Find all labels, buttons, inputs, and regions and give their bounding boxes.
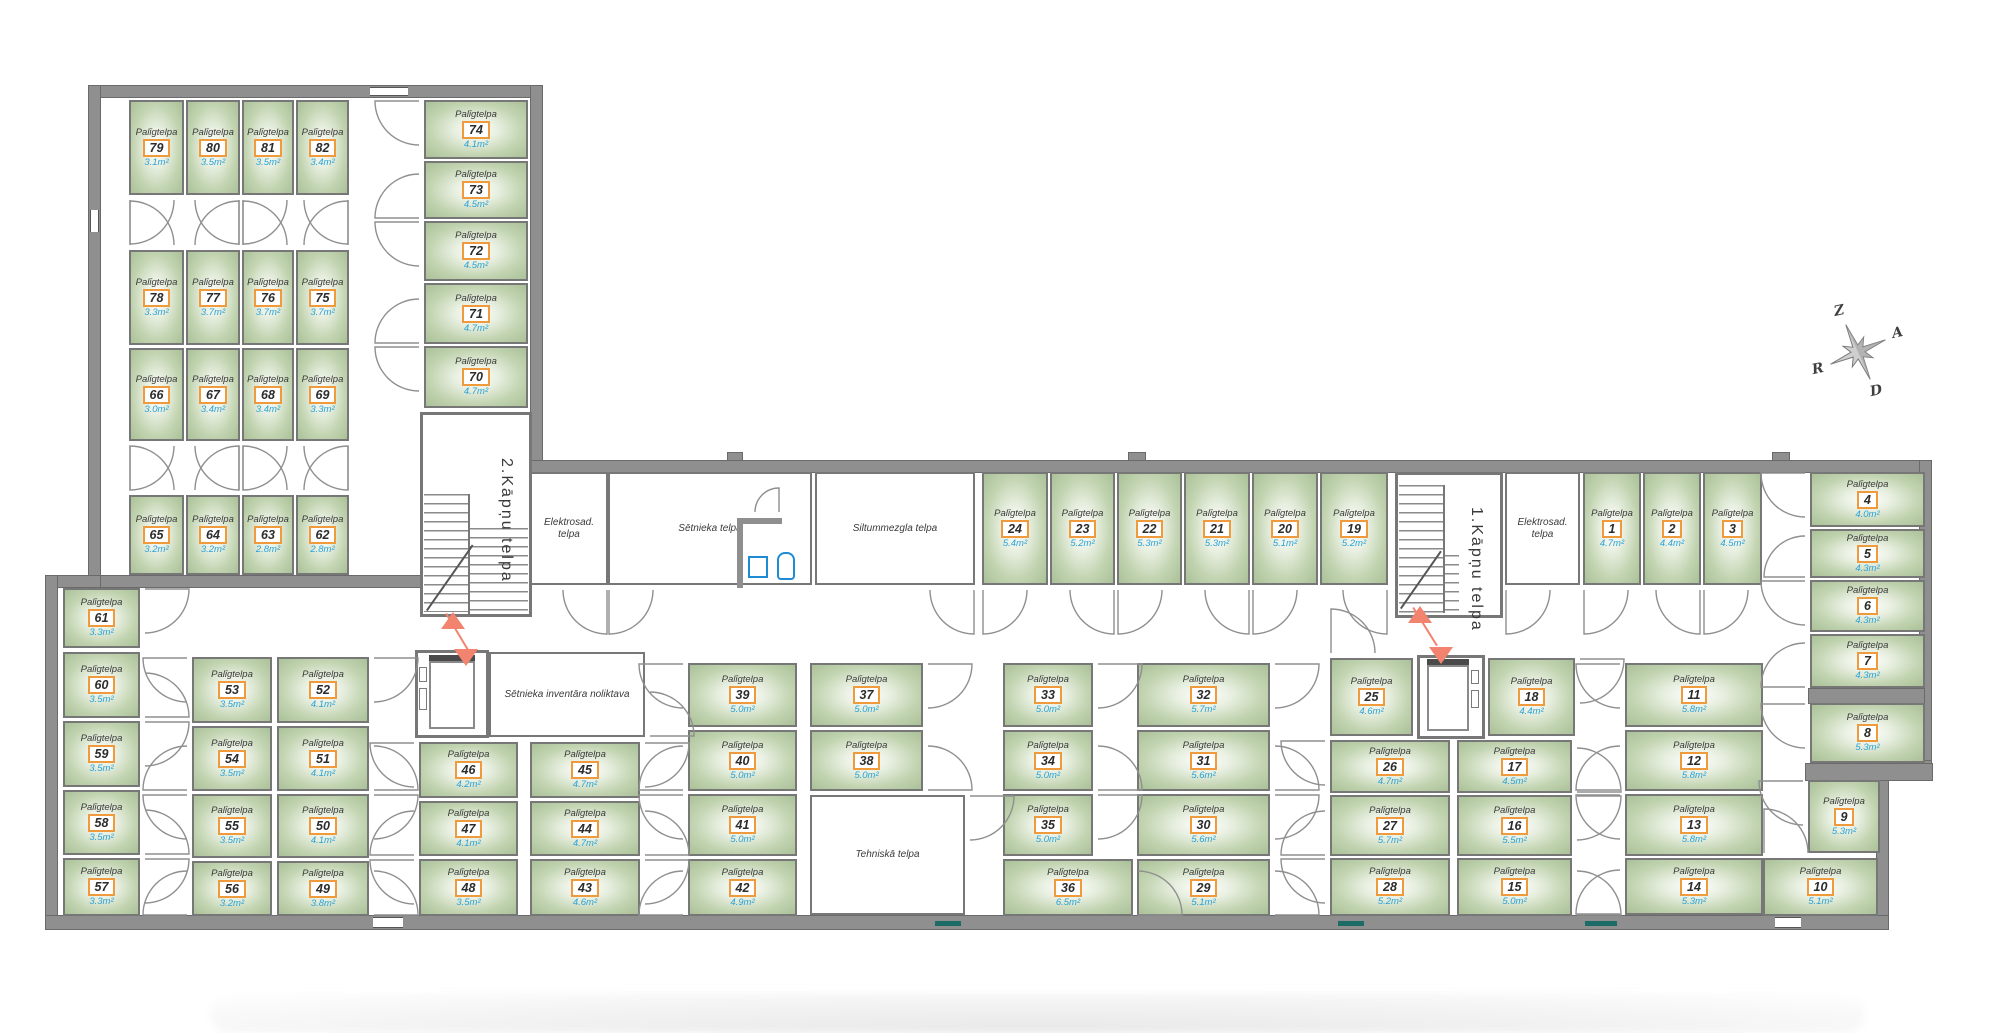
room-area: 3.1m²	[144, 158, 168, 168]
room-area: 4.7m²	[464, 324, 488, 334]
room-area: 4.5m²	[464, 261, 488, 271]
room-area: 5.7m²	[1191, 705, 1215, 715]
door-arc	[1343, 590, 1387, 634]
room-number: 78	[143, 289, 171, 307]
room-area: 4.3m²	[1855, 564, 1879, 574]
room-type-label: Palīgtelpa	[564, 868, 606, 878]
room-area: 4.7m²	[1600, 539, 1624, 549]
room-type-label: Palīgtelpa	[1712, 509, 1754, 519]
wall-joint	[1772, 452, 1790, 461]
room-type-label: Palīgtelpa	[846, 675, 888, 685]
window-sill	[1338, 921, 1364, 926]
room-type-label: Palīgtelpa	[302, 515, 344, 525]
room-area: 6.5m²	[1056, 898, 1080, 908]
room-type-label: Palīgtelpa	[211, 869, 253, 879]
room-number: 75	[309, 289, 337, 307]
room-number: 59	[88, 745, 116, 763]
door-arc	[1759, 781, 1803, 825]
room-area: 4.1m²	[311, 700, 335, 710]
door-arc	[375, 347, 419, 391]
door-arc	[1761, 643, 1805, 687]
room-type-label: Palīgtelpa	[448, 809, 490, 819]
room-number: 11	[1681, 686, 1708, 704]
door-arc	[130, 201, 174, 245]
room-type-label: Palīgtelpa	[1673, 675, 1715, 685]
room-area: 4.0m²	[1855, 510, 1879, 520]
elevator-equipment	[419, 667, 427, 682]
door-arc	[243, 446, 287, 490]
storage-room-80: Palīgtelpa803.5m²	[186, 100, 240, 195]
door-arc	[1118, 590, 1162, 634]
room-number: 74	[462, 121, 490, 139]
room-area: 4.7m²	[573, 839, 597, 849]
room-number: 69	[309, 386, 337, 404]
door-arc	[1253, 590, 1297, 634]
utility-room-label: Elektrosad. telpa	[544, 517, 594, 541]
door-arc	[639, 871, 683, 915]
room-number: 46	[455, 761, 483, 779]
room-number: 77	[199, 289, 227, 307]
room-number: 81	[254, 139, 282, 157]
room-type-label: Palīgtelpa	[1027, 805, 1069, 815]
utility-room: Sētnieka inventāra noliktava	[489, 652, 645, 737]
room-area: 3.7m²	[201, 308, 225, 318]
utility-room-label: Siltummezgla telpa	[853, 523, 937, 535]
room-number: 72	[462, 242, 490, 260]
compass-star-shading	[1846, 325, 1886, 380]
storage-room-53: Palīgtelpa533.5m²	[192, 657, 272, 723]
room-type-label: Palīgtelpa	[1183, 741, 1225, 751]
room-type-label: Palīgtelpa	[1183, 675, 1225, 685]
room-type-label: Palīgtelpa	[1129, 509, 1171, 519]
door-arc	[370, 860, 414, 904]
room-area: 5.0m²	[854, 771, 878, 781]
room-number: 47	[455, 820, 483, 838]
room-area: 3.5m²	[456, 898, 480, 908]
room-area: 4.4m²	[1519, 707, 1543, 717]
room-number: 67	[199, 386, 227, 404]
room-type-label: Palīgtelpa	[455, 357, 497, 367]
storage-room-81: Palīgtelpa813.5m²	[242, 100, 294, 195]
room-area: 3.5m²	[220, 769, 244, 779]
door-arc	[928, 746, 972, 790]
room-type-label: Palīgtelpa	[211, 806, 253, 816]
room-type-label: Palīgtelpa	[1183, 805, 1225, 815]
room-type-label: Palīgtelpa	[302, 806, 344, 816]
room-area: 3.5m²	[256, 158, 280, 168]
room-number: 34	[1034, 752, 1062, 770]
room-number: 16	[1501, 817, 1529, 835]
storage-room-40: Palīgtelpa405.0m²	[688, 730, 797, 791]
door-arc	[243, 201, 287, 245]
room-type-label: Palīgtelpa	[1591, 509, 1633, 519]
room-type-label: Palīgtelpa	[564, 809, 606, 819]
storage-room-35: Palīgtelpa355.0m²	[1003, 794, 1093, 856]
room-number: 6	[1857, 597, 1878, 615]
room-type-label: Palīgtelpa	[1511, 677, 1553, 687]
room-type-label: Palīgtelpa	[846, 741, 888, 751]
door-arc	[145, 722, 189, 766]
room-number: 21	[1203, 520, 1231, 538]
room-number: 10	[1807, 878, 1835, 896]
room-area: 5.1m²	[1273, 539, 1297, 549]
wall	[1808, 688, 1925, 704]
room-number: 3	[1722, 520, 1743, 538]
room-number: 30	[1190, 816, 1218, 834]
room-type-label: Palīgtelpa	[81, 803, 123, 813]
room-number: 58	[88, 814, 116, 832]
door-arc	[243, 446, 287, 490]
storage-room-37: Palīgtelpa375.0m²	[810, 663, 923, 727]
room-area: 5.2m²	[1070, 539, 1094, 549]
storage-room-73: Palīgtelpa734.5m²	[424, 161, 528, 219]
room-type-label: Palīgtelpa	[994, 509, 1036, 519]
door-arc	[304, 200, 348, 244]
entrance-arrow-down	[1429, 647, 1453, 664]
storage-room-62: Palīgtelpa622.8m²	[296, 495, 349, 575]
door-arc	[145, 859, 189, 903]
elevator-equipment	[1471, 670, 1479, 684]
door-arc	[1281, 811, 1325, 855]
room-area: 5.4m²	[1003, 539, 1027, 549]
room-type-label: Palīgtelpa	[564, 750, 606, 760]
storage-room-22: Palīgtelpa225.3m²	[1117, 472, 1182, 585]
room-area: 5.0m²	[730, 835, 754, 845]
room-type-label: Palīgtelpa	[1847, 586, 1889, 596]
storage-room-70: Palīgtelpa704.7m²	[424, 346, 528, 408]
storage-room-82: Palīgtelpa823.4m²	[296, 100, 349, 195]
storage-room-17: Palīgtelpa174.5m²	[1457, 740, 1572, 793]
door-arc	[243, 200, 287, 244]
wall	[88, 575, 435, 588]
room-area: 4.2m²	[456, 780, 480, 790]
door-arc	[1576, 870, 1620, 914]
room-type-label: Palīgtelpa	[722, 675, 764, 685]
storage-room-58: Palīgtelpa583.5m²	[63, 790, 140, 855]
door-arc	[1704, 590, 1748, 634]
wall	[88, 85, 101, 588]
room-area: 3.7m²	[310, 308, 334, 318]
room-type-label: Palīgtelpa	[1823, 797, 1865, 807]
storage-room-38: Palīgtelpa385.0m²	[810, 730, 923, 791]
door-arc	[370, 743, 414, 787]
room-area: 4.7m²	[573, 780, 597, 790]
room-area: 5.2m²	[1342, 539, 1366, 549]
room-number: 38	[853, 752, 881, 770]
room-number: 41	[729, 816, 757, 834]
storage-room-63: Palīgtelpa632.8m²	[242, 495, 294, 575]
room-number: 44	[571, 820, 599, 838]
room-type-label: Palīgtelpa	[302, 375, 344, 385]
room-type-label: Palīgtelpa	[1673, 805, 1715, 815]
door-arc	[1070, 590, 1114, 634]
room-type-label: Palīgtelpa	[1494, 867, 1536, 877]
storage-room-61: Palīgtelpa613.3m²	[63, 588, 140, 648]
storage-room-50: Palīgtelpa504.1m²	[277, 794, 369, 858]
room-number: 60	[88, 676, 116, 694]
door-arc	[130, 200, 174, 244]
room-type-label: Palīgtelpa	[302, 128, 344, 138]
door-arc	[304, 446, 348, 490]
room-type-label: Palīgtelpa	[1494, 806, 1536, 816]
room-type-label: Palīgtelpa	[136, 128, 178, 138]
room-area: 5.1m²	[1191, 898, 1215, 908]
storage-room-69: Palīgtelpa693.3m²	[296, 348, 349, 441]
window-sill	[1585, 921, 1617, 926]
door-arc	[1577, 748, 1621, 792]
storage-room-8: Palīgtelpa85.3m²	[1810, 703, 1925, 763]
door-arc	[374, 795, 418, 839]
room-number: 12	[1680, 752, 1708, 770]
room-type-label: Palīgtelpa	[1027, 741, 1069, 751]
storage-room-23: Palīgtelpa235.2m²	[1050, 472, 1115, 585]
door-arc	[928, 664, 972, 708]
door-arc	[195, 446, 239, 490]
room-number: 54	[218, 750, 246, 768]
door-arc	[1275, 664, 1319, 708]
storage-room-78: Palīgtelpa783.3m²	[129, 250, 184, 345]
room-number: 9	[1834, 808, 1855, 826]
door-arc	[1656, 590, 1700, 634]
room-area: 3.5m²	[89, 695, 113, 705]
window	[90, 210, 99, 232]
room-area: 5.3m²	[1137, 539, 1161, 549]
room-number: 13	[1680, 816, 1708, 834]
room-type-label: Palīgtelpa	[1847, 480, 1889, 490]
room-number: 42	[729, 879, 757, 897]
storage-room-30: Palīgtelpa305.6m²	[1137, 794, 1270, 856]
room-number: 80	[199, 139, 227, 157]
door-arc	[1281, 741, 1325, 785]
door-arc	[370, 811, 414, 855]
room-area: 5.6m²	[1191, 835, 1215, 845]
room-type-label: Palīgtelpa	[455, 294, 497, 304]
room-number: 55	[218, 817, 246, 835]
room-type-label: Palīgtelpa	[136, 375, 178, 385]
storage-room-56: Palīgtelpa563.2m²	[192, 861, 272, 916]
storage-room-43: Palīgtelpa434.6m²	[530, 859, 640, 916]
room-number: 8	[1857, 724, 1878, 742]
room-type-label: Palīgtelpa	[448, 868, 490, 878]
storage-room-15: Palīgtelpa155.0m²	[1457, 858, 1572, 916]
room-type-label: Palīgtelpa	[1369, 806, 1411, 816]
wall-joint	[1128, 452, 1146, 461]
room-number: 5	[1857, 545, 1878, 563]
room-number: 29	[1190, 879, 1218, 897]
room-type-label: Palīgtelpa	[1351, 677, 1393, 687]
door-arc	[1506, 590, 1550, 634]
room-type-label: Palīgtelpa	[302, 739, 344, 749]
door-arc	[145, 810, 189, 854]
room-number: 26	[1376, 758, 1404, 776]
storage-room-60: Palīgtelpa603.5m²	[63, 652, 140, 718]
room-number: 71	[462, 305, 490, 323]
stairwell-1-label: 1.Kāpņu telpa	[1456, 482, 1496, 657]
compass-north-label: Z	[1833, 302, 1846, 320]
room-area: 4.6m²	[1359, 707, 1383, 717]
elevator-car	[429, 661, 475, 729]
door-arc	[1761, 473, 1805, 517]
door-arc	[1576, 664, 1620, 708]
room-area: 5.0m²	[1036, 705, 1060, 715]
storage-room-7: Palīgtelpa74.3m²	[1810, 634, 1925, 688]
compass-east-label: A	[1891, 324, 1905, 342]
room-area: 4.1m²	[311, 769, 335, 779]
room-type-label: Palīgtelpa	[192, 515, 234, 525]
storage-room-68: Palīgtelpa683.4m²	[242, 348, 294, 441]
room-type-label: Palīgtelpa	[211, 739, 253, 749]
storage-room-9: Palīgtelpa95.3m²	[1808, 780, 1880, 853]
storage-room-12: Palīgtelpa125.8m²	[1625, 730, 1763, 791]
room-area: 3.3m²	[144, 308, 168, 318]
storage-room-64: Palīgtelpa643.2m²	[186, 495, 240, 575]
room-number: 68	[254, 386, 282, 404]
door-arc	[374, 871, 418, 915]
room-area: 3.3m²	[89, 897, 113, 907]
storage-room-26: Palīgtelpa264.7m²	[1330, 740, 1450, 793]
room-number: 79	[143, 139, 171, 157]
room-area: 4.7m²	[464, 387, 488, 397]
room-number: 49	[309, 880, 337, 898]
room-area: 5.5m²	[1502, 836, 1526, 846]
door-arc	[145, 673, 189, 717]
room-area: 3.3m²	[310, 405, 334, 415]
room-type-label: Palīgtelpa	[1369, 747, 1411, 757]
room-area: 4.9m²	[730, 898, 754, 908]
storage-room-47: Palīgtelpa474.1m²	[419, 801, 518, 856]
storage-room-44: Palīgtelpa444.7m²	[530, 801, 640, 856]
storage-room-48: Palīgtelpa483.5m²	[419, 859, 518, 916]
door-arc	[304, 201, 348, 245]
room-area: 5.3m²	[1855, 743, 1879, 753]
toilet-icon	[777, 552, 795, 580]
storage-room-27: Palīgtelpa275.7m²	[1330, 795, 1450, 856]
room-area: 3.8m²	[311, 899, 335, 909]
room-area: 3.5m²	[89, 833, 113, 843]
window	[1775, 917, 1801, 928]
room-area: 3.2m²	[220, 899, 244, 909]
storage-room-74: Palīgtelpa744.1m²	[424, 100, 528, 159]
door-arc	[1275, 871, 1319, 915]
storage-room-55: Palīgtelpa553.5m²	[192, 794, 272, 858]
door-arc	[1281, 859, 1325, 903]
storage-room-42: Palīgtelpa424.9m²	[688, 859, 797, 916]
room-type-label: Palīgtelpa	[1027, 675, 1069, 685]
room-area: 3.0m²	[144, 405, 168, 415]
storage-room-10: Palīgtelpa105.1m²	[1763, 858, 1878, 916]
room-number: 73	[462, 181, 490, 199]
utility-room-label: Tehniskā telpa	[855, 849, 919, 861]
storage-room-18: Palīgtelpa184.4m²	[1488, 658, 1575, 736]
room-number: 45	[571, 761, 599, 779]
room-area: 5.3m²	[1682, 897, 1706, 907]
storage-room-79: Palīgtelpa793.1m²	[129, 100, 184, 195]
wc-partition	[737, 518, 743, 588]
room-type-label: Palīgtelpa	[192, 128, 234, 138]
door-arc	[145, 589, 189, 633]
room-number: 36	[1054, 879, 1082, 897]
room-type-label: Palīgtelpa	[1847, 534, 1889, 544]
room-area: 5.1m²	[1808, 897, 1832, 907]
room-area: 2.8m²	[310, 545, 334, 555]
storage-room-71: Palīgtelpa714.7m²	[424, 283, 528, 344]
room-area: 2.8m²	[256, 545, 280, 555]
room-number: 18	[1518, 688, 1546, 706]
stair-divider	[468, 494, 470, 614]
window-sill	[935, 921, 961, 926]
room-number: 37	[853, 686, 881, 704]
room-number: 76	[254, 289, 282, 307]
door-arc	[1275, 746, 1319, 790]
door-arc	[1098, 664, 1142, 708]
room-area: 4.5m²	[1502, 777, 1526, 787]
door-arc	[375, 101, 419, 145]
room-number: 33	[1034, 686, 1062, 704]
room-number: 35	[1034, 816, 1062, 834]
storage-room-4: Palīgtelpa44.0m²	[1810, 472, 1925, 527]
storage-room-59: Palīgtelpa593.5m²	[63, 721, 140, 787]
door-arc	[1275, 795, 1319, 839]
storage-room-28: Palīgtelpa285.2m²	[1330, 858, 1450, 916]
room-number: 53	[218, 681, 246, 699]
storage-room-21: Palīgtelpa215.3m²	[1184, 472, 1250, 585]
door-arc	[1576, 795, 1620, 839]
storage-room-16: Palīgtelpa165.5m²	[1457, 795, 1572, 856]
room-area: 3.2m²	[201, 545, 225, 555]
room-type-label: Palīgtelpa	[1847, 641, 1889, 651]
storage-room-72: Palīgtelpa724.5m²	[424, 221, 528, 281]
room-number: 43	[571, 879, 599, 897]
room-number: 2	[1662, 520, 1683, 538]
room-number: 82	[309, 139, 337, 157]
door-arc	[645, 743, 689, 787]
door-arc	[1764, 809, 1808, 853]
room-area: 4.4m²	[1660, 539, 1684, 549]
room-number: 57	[88, 878, 116, 896]
room-type-label: Palīgtelpa	[81, 867, 123, 877]
room-number: 40	[729, 752, 757, 770]
room-type-label: Palīgtelpa	[1333, 509, 1375, 519]
room-area: 3.3m²	[89, 628, 113, 638]
room-type-label: Palīgtelpa	[302, 869, 344, 879]
utility-room: Elektrosad. telpa	[1505, 472, 1580, 585]
door-arc	[143, 746, 187, 790]
door-arc	[645, 860, 689, 904]
room-area: 5.0m²	[730, 771, 754, 781]
storage-room-32: Palīgtelpa325.7m²	[1137, 663, 1270, 727]
door-arc	[1098, 795, 1142, 839]
room-type-label: Palīgtelpa	[1264, 509, 1306, 519]
door-arc	[374, 746, 418, 790]
room-area: 3.5m²	[89, 764, 113, 774]
room-number: 64	[199, 526, 227, 544]
storage-room-41: Palīgtelpa415.0m²	[688, 794, 797, 856]
utility-room: Siltummezgla telpa	[815, 472, 975, 585]
room-area: 4.1m²	[464, 140, 488, 150]
wc-partition	[737, 518, 782, 524]
room-type-label: Palīgtelpa	[247, 278, 289, 288]
door-arc	[1205, 590, 1249, 634]
utility-room-label: Elektrosad. telpa	[1517, 517, 1567, 541]
room-number: 51	[309, 750, 337, 768]
room-area: 5.7m²	[1378, 836, 1402, 846]
room-type-label: Palīgtelpa	[1673, 741, 1715, 751]
entrance-arrow-down	[454, 649, 478, 666]
storage-room-67: Palīgtelpa673.4m²	[186, 348, 240, 441]
room-type-label: Palīgtelpa	[722, 868, 764, 878]
storage-room-34: Palīgtelpa345.0m²	[1003, 730, 1093, 791]
room-type-label: Palīgtelpa	[1800, 867, 1842, 877]
